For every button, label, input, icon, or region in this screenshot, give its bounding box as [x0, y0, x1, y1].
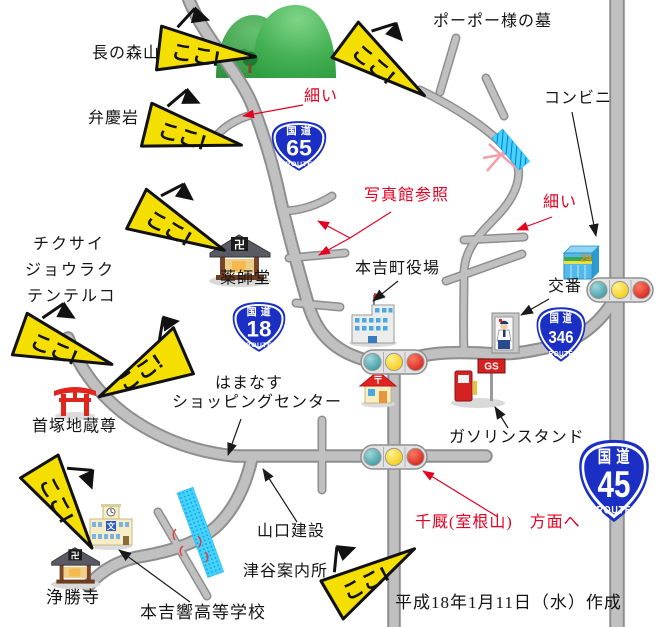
svg-text:ROUTE: ROUTE: [285, 161, 312, 168]
arrow-gas-station: [495, 407, 508, 428]
gas-station-icon: GS: [451, 359, 505, 408]
label-naganomori: 長の森山: [92, 46, 160, 62]
svg-text:ROUTE: ROUTE: [246, 342, 272, 349]
label-hamanasu-2: ショッピングセンター: [172, 395, 342, 411]
police-box-icon: [492, 313, 519, 353]
label-kubizuka: 首塚地蔵尊: [32, 419, 117, 435]
route-badge-45: 国道 45 ROUTE: [577, 438, 651, 524]
label-chikusai: チクサイ: [33, 237, 105, 253]
door: [368, 336, 377, 343]
svg-text:346: 346: [548, 327, 573, 348]
school-icon: 文: [90, 504, 132, 550]
town-hall-icon: [349, 293, 397, 347]
open-24-sign: 24: [580, 254, 592, 265]
label-hamanasu-1: はまなす: [215, 376, 283, 392]
label-town-hall: 本吉町役場: [355, 261, 440, 277]
temple-joshoji-icon: 卍: [51, 548, 101, 590]
manji-icon: 卍: [234, 239, 245, 252]
here-flag-kubizuka-1: ここ!: [12, 292, 125, 384]
label-joshoji: 浄勝寺: [46, 589, 100, 606]
label-jouraku: ジョウラク: [25, 263, 115, 279]
svg-text:65: 65: [286, 135, 312, 161]
arrow-konbini: [572, 112, 596, 236]
arrow-town-hall: [373, 281, 398, 301]
label-gas-stand: ガソリンスタンド: [449, 430, 585, 446]
school-mark-icon: 文: [107, 521, 116, 531]
label-date-note: 平成18年1月11日（水）作成: [395, 594, 622, 611]
label-senmaya: 千厩(室根山) 方面へ: [415, 515, 581, 531]
route-badge-65: 国道 65 ROUTE: [270, 120, 328, 172]
label-tsuya-annai: 津谷案内所: [243, 564, 328, 580]
arrow-shashinkan-up: [318, 221, 350, 238]
svg-text:ここ!: ここ!: [155, 119, 209, 155]
traffic-light-center: [361, 350, 427, 374]
svg-text:ROUTE: ROUTE: [549, 351, 573, 359]
arrow-yamaguchi: [263, 469, 297, 522]
label-yamaguchi: 山口建設: [257, 524, 325, 540]
convenience-store-icon: 24: [564, 246, 599, 279]
label-tenteruko: テンテルコ: [27, 289, 117, 305]
gs-sign: GS: [484, 362, 499, 373]
postal-mark-icon: 〒: [373, 375, 383, 387]
route-badge-18: 国道 18 ROUTE: [231, 301, 287, 353]
svg-text:45: 45: [598, 464, 631, 506]
label-hosoi-1: 細い: [304, 89, 338, 105]
label-yakushido: 薬師堂: [220, 271, 271, 287]
manji-icon: 卍: [71, 550, 80, 560]
label-high-school: 本吉響高等学校: [140, 604, 266, 621]
torii-icon: [54, 387, 96, 420]
arrow-hosoi-2: [517, 217, 552, 230]
label-kouban: 交番: [548, 279, 582, 295]
traffic-light-south: [361, 445, 427, 469]
arrow-shashinkan-stem: [350, 212, 391, 238]
label-hosoi-2: 細い: [543, 195, 577, 211]
svg-text:国道: 国道: [550, 311, 576, 325]
traffic-light-northeast: [587, 278, 653, 302]
label-shashinkan: 写真館参照: [364, 188, 449, 204]
svg-text:ROUTE: ROUTE: [597, 505, 632, 517]
hand-drawn-guide-map: 卍 卍 〒: [0, 0, 663, 627]
route-badge-346: 国道 346 ROUTE: [535, 306, 587, 363]
svg-text:18: 18: [247, 317, 272, 342]
label-benkei: 弁慶岩: [88, 111, 139, 127]
label-popo-grave: ポーポー様の墓: [433, 14, 552, 30]
label-konbini: コンビニ: [544, 91, 612, 107]
arrow-senmaya: [423, 471, 498, 517]
